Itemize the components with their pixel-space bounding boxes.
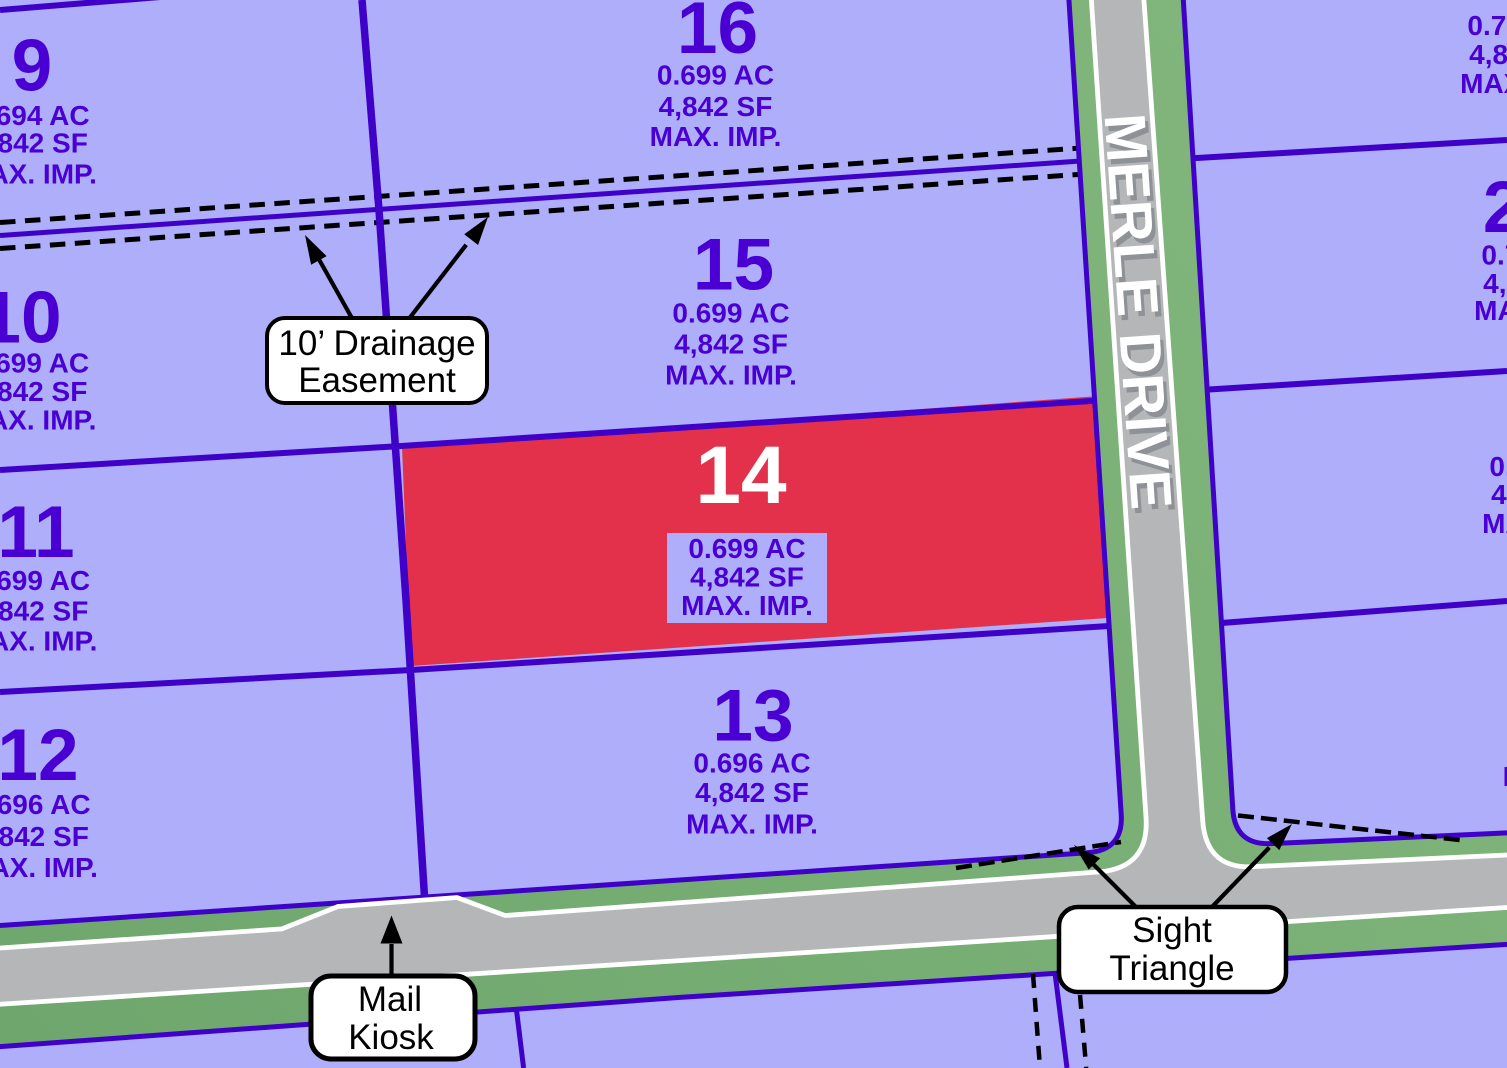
svg-text:4,842 SF: 4,842 SF [0, 595, 88, 626]
svg-text:MAX. IMP.: MAX. IMP. [0, 405, 96, 436]
svg-text:MAX. IMP.: MAX. IMP. [650, 121, 782, 152]
svg-text:0.700 AC: 0.700 AC [1489, 451, 1507, 482]
svg-text:0.699 AC: 0.699 AC [657, 60, 774, 91]
svg-text:4,842 SF: 4,842 SF [695, 777, 809, 808]
svg-text:4,842 SF: 4,842 SF [659, 91, 773, 122]
svg-text:15: 15 [693, 225, 774, 306]
svg-text:0.699 AC: 0.699 AC [0, 348, 89, 379]
svg-text:4,842 SF: 4,842 SF [690, 562, 804, 593]
svg-text:0.696 AC: 0.696 AC [0, 789, 91, 820]
svg-text:4,842 SF: 4,842 SF [0, 821, 89, 852]
svg-text:Kiosk: Kiosk [348, 1018, 434, 1057]
svg-text:MAX. IMP.: MAX. IMP. [0, 158, 97, 189]
svg-text:4,842 SF: 4,842 SF [1469, 39, 1507, 70]
svg-text:0.699 AC: 0.699 AC [0, 565, 90, 596]
svg-text:21: 21 [1483, 167, 1507, 248]
svg-text:4,842 SF: 4,842 SF [674, 329, 788, 360]
svg-text:Sight: Sight [1132, 911, 1212, 950]
svg-text:MAX. IMP.: MAX. IMP. [681, 590, 813, 621]
svg-text:12: 12 [0, 715, 79, 796]
svg-text:MAX. IMP.: MAX. IMP. [686, 809, 818, 840]
svg-text:MAX. IMP.: MAX. IMP. [665, 360, 797, 391]
svg-text:0.699 AC: 0.699 AC [672, 298, 789, 329]
svg-text:MAX. IMP.: MAX. IMP. [0, 852, 98, 883]
svg-text:MAX. IMP.: MAX. IMP. [1460, 68, 1507, 99]
svg-text:4,842 SF: 4,842 SF [0, 376, 87, 407]
svg-text:MAX. IMP.: MAX. IMP. [1482, 508, 1507, 539]
svg-text:16: 16 [677, 0, 758, 69]
svg-text:0.696 AC: 0.696 AC [693, 748, 810, 779]
svg-text:Mail: Mail [358, 980, 422, 1019]
svg-text:MAX. IMP.: MAX. IMP. [1503, 761, 1507, 792]
svg-text:11: 11 [0, 492, 75, 573]
svg-text:9: 9 [12, 25, 53, 106]
svg-text:0.694 AC: 0.694 AC [0, 100, 90, 131]
svg-text:0.700 AC: 0.700 AC [1467, 10, 1507, 41]
svg-text:MAX. IMP.: MAX. IMP. [1474, 295, 1507, 326]
svg-text:10: 10 [0, 278, 62, 359]
svg-text:MAX. IMP.: MAX. IMP. [0, 626, 97, 657]
svg-text:0.699 AC: 0.699 AC [688, 533, 805, 564]
svg-text:13: 13 [712, 676, 793, 757]
svg-text:10’ Drainage: 10’ Drainage [278, 324, 475, 363]
svg-text:14: 14 [695, 430, 787, 521]
svg-text:4,842 SF: 4,842 SF [0, 128, 88, 159]
svg-text:Easement: Easement [298, 361, 456, 400]
svg-text:Triangle: Triangle [1109, 949, 1234, 988]
svg-text:4,842 SF: 4,842 SF [1491, 479, 1507, 510]
svg-text:0.716 AC: 0.716 AC [1481, 240, 1507, 271]
